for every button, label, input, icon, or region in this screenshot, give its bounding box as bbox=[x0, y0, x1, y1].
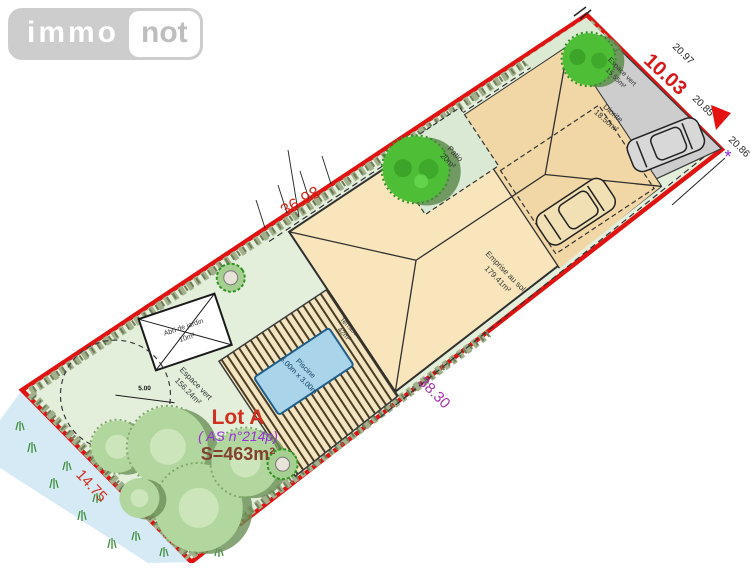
dim-neighbor-top: 20.97 bbox=[670, 42, 696, 68]
immonot-logo-immo: immo bbox=[11, 11, 129, 57]
immonot-logo-not: not bbox=[129, 11, 200, 57]
lot-parcel-ref: ( AS n°214p) bbox=[198, 428, 278, 444]
corner-marker-icon: * bbox=[724, 147, 731, 167]
lot-surface: S=463m² bbox=[201, 444, 276, 464]
lot-name: Lot A bbox=[212, 406, 265, 429]
immonot-logo: immo not bbox=[8, 8, 203, 60]
tree-circle-radius-label: 5.00 bbox=[138, 385, 151, 392]
site-plan-image: Piscine 6.00m x 3.00m Terrasse 42m² Empr… bbox=[0, 0, 750, 563]
entrance-arrow-icon bbox=[711, 105, 731, 130]
tree-circle-radius-value: 5.00 bbox=[138, 385, 151, 392]
parcel-group: Piscine 6.00m x 3.00m Terrasse 42m² Empr… bbox=[22, 0, 750, 563]
plan-svg: Piscine 6.00m x 3.00m Terrasse 42m² Empr… bbox=[0, 0, 750, 563]
